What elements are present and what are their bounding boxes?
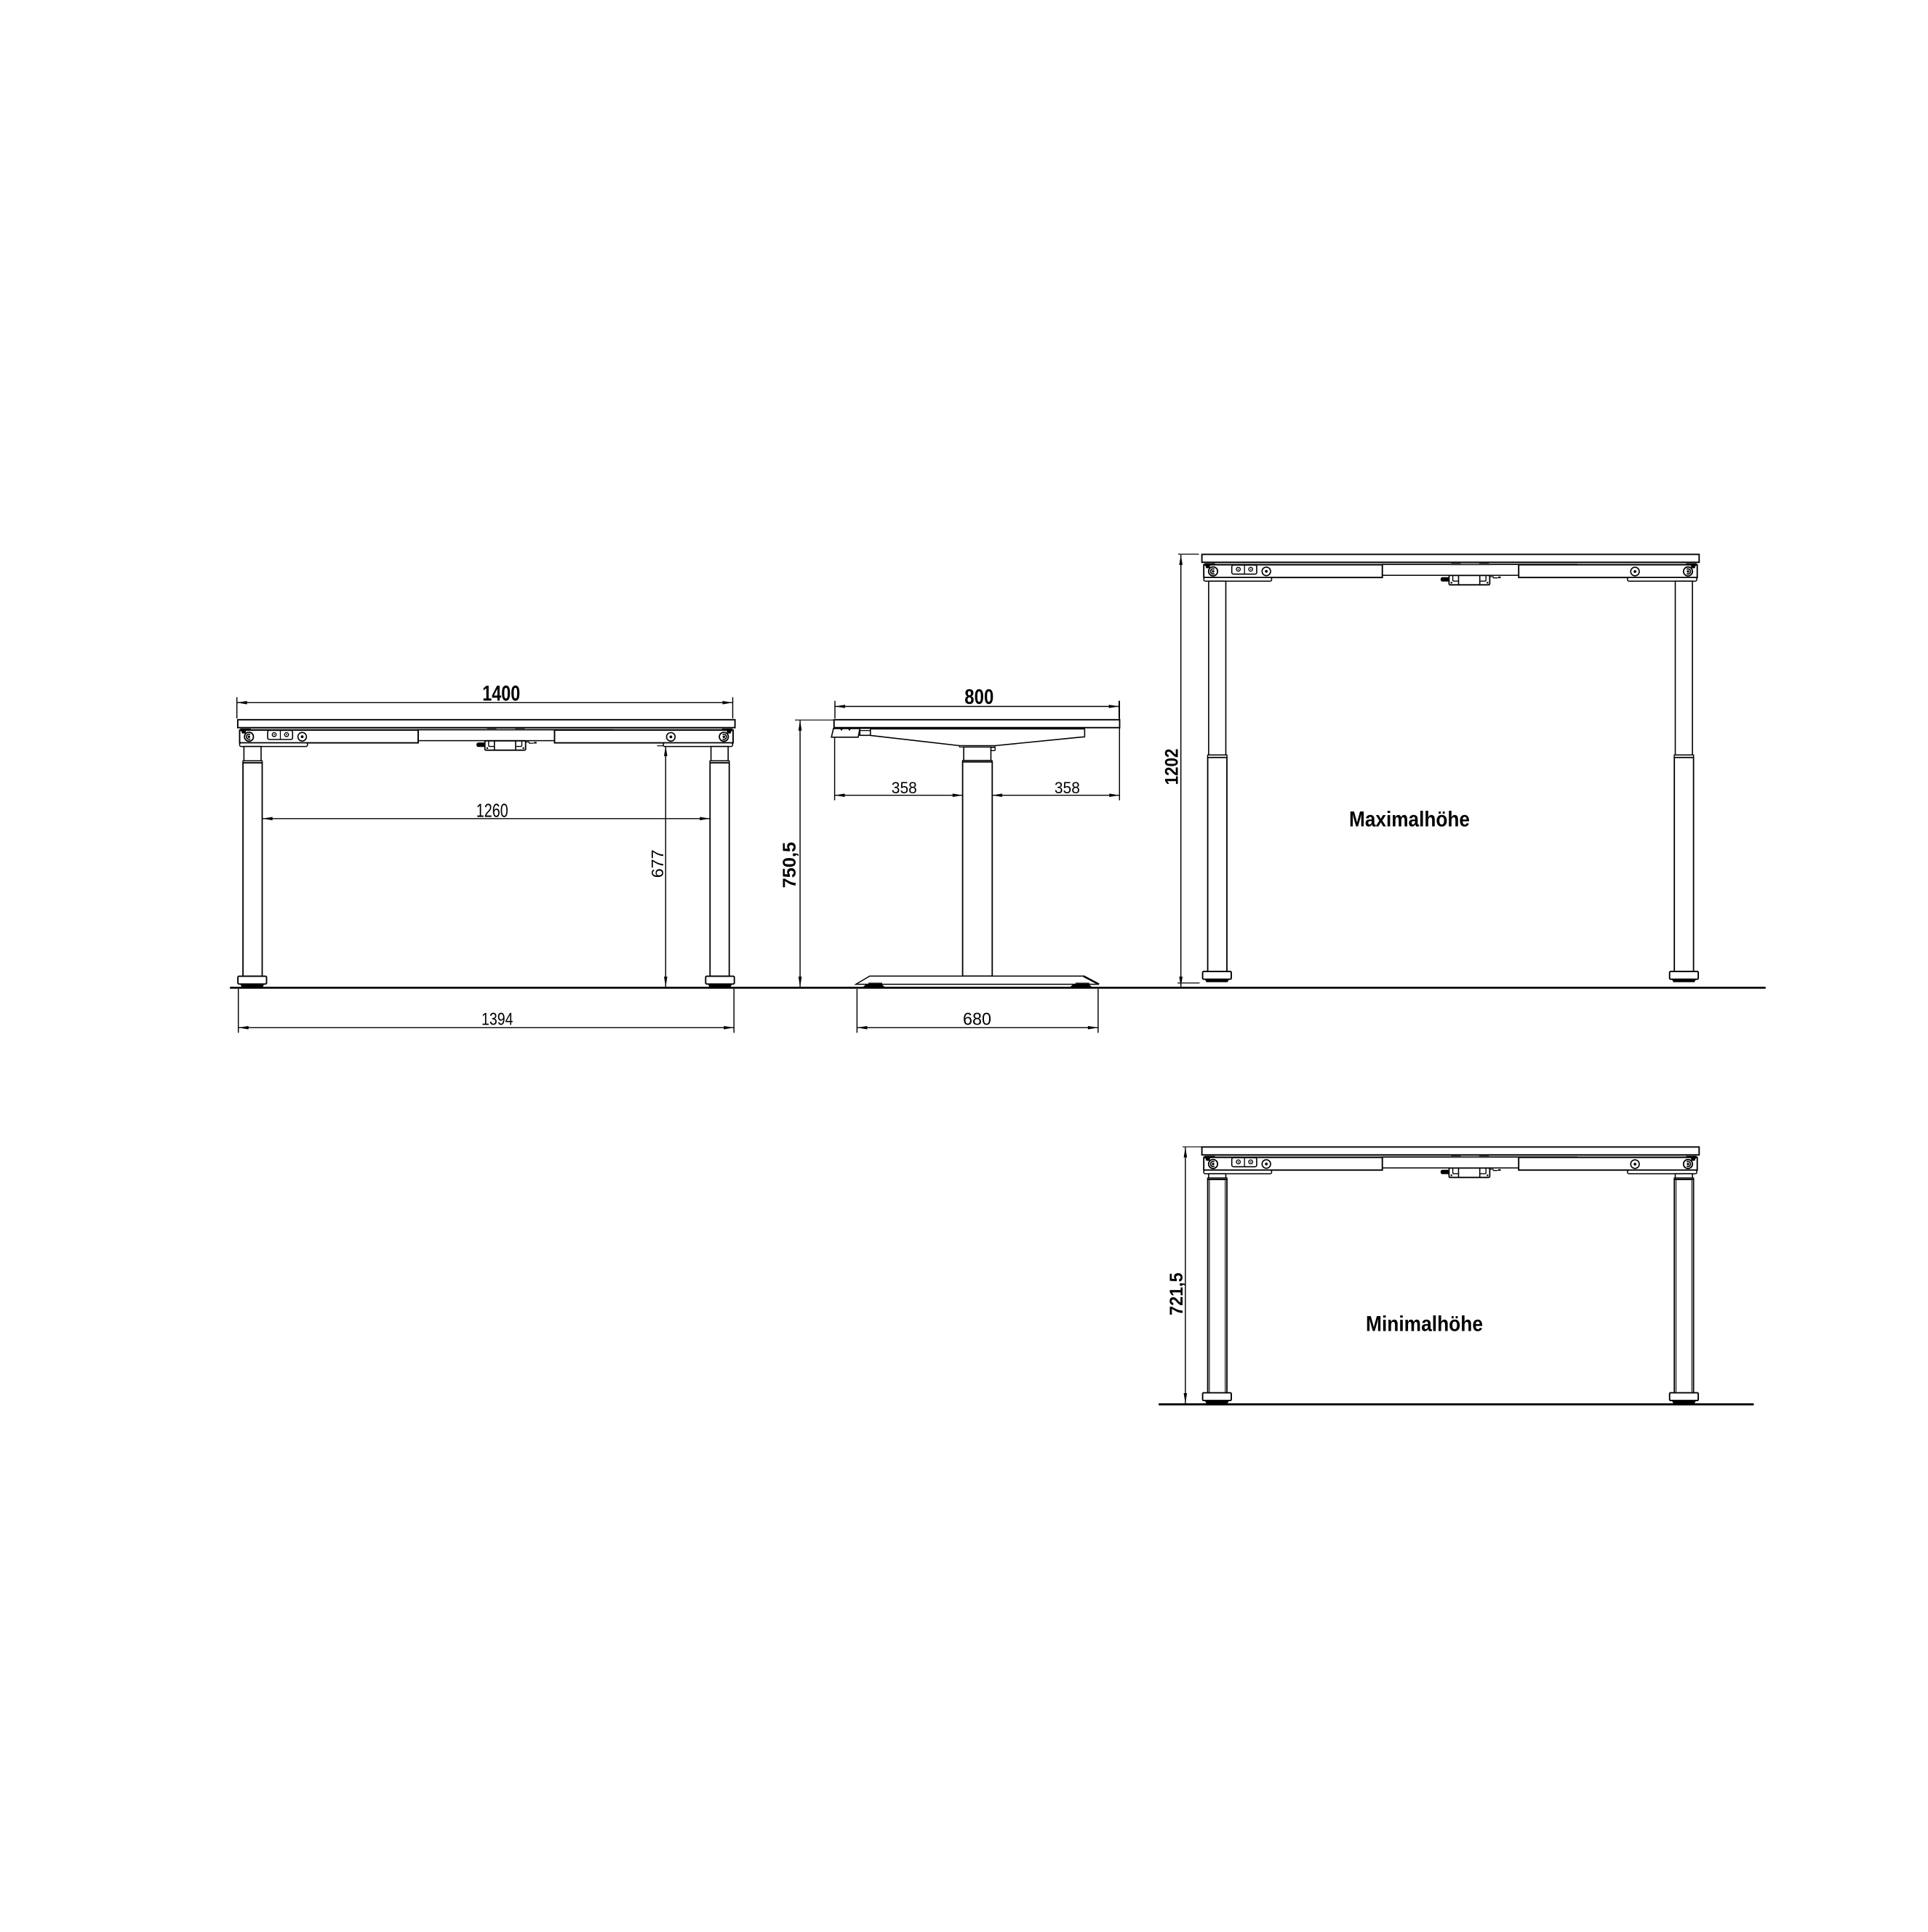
svg-text:680: 680: [963, 1009, 991, 1029]
svg-text:1202: 1202: [1161, 749, 1182, 785]
svg-text:Maximalhöhe: Maximalhöhe: [1349, 808, 1470, 832]
svg-text:358: 358: [892, 779, 917, 797]
svg-text:721,5: 721,5: [1167, 1272, 1187, 1315]
svg-text:1400: 1400: [482, 682, 520, 706]
svg-text:1260: 1260: [476, 799, 508, 821]
svg-text:677: 677: [648, 849, 667, 878]
svg-text:800: 800: [964, 686, 993, 709]
svg-text:750,5: 750,5: [780, 842, 800, 889]
svg-text:358: 358: [1055, 779, 1080, 797]
svg-text:Minimalhöhe: Minimalhöhe: [1366, 1312, 1483, 1336]
svg-text:1394: 1394: [481, 1009, 513, 1029]
